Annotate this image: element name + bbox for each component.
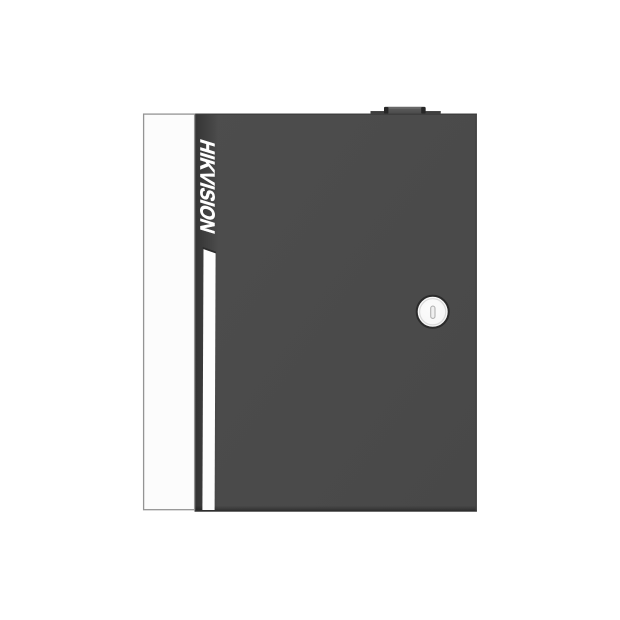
svg-text:HIKVISION: HIKVISION [196, 137, 218, 236]
